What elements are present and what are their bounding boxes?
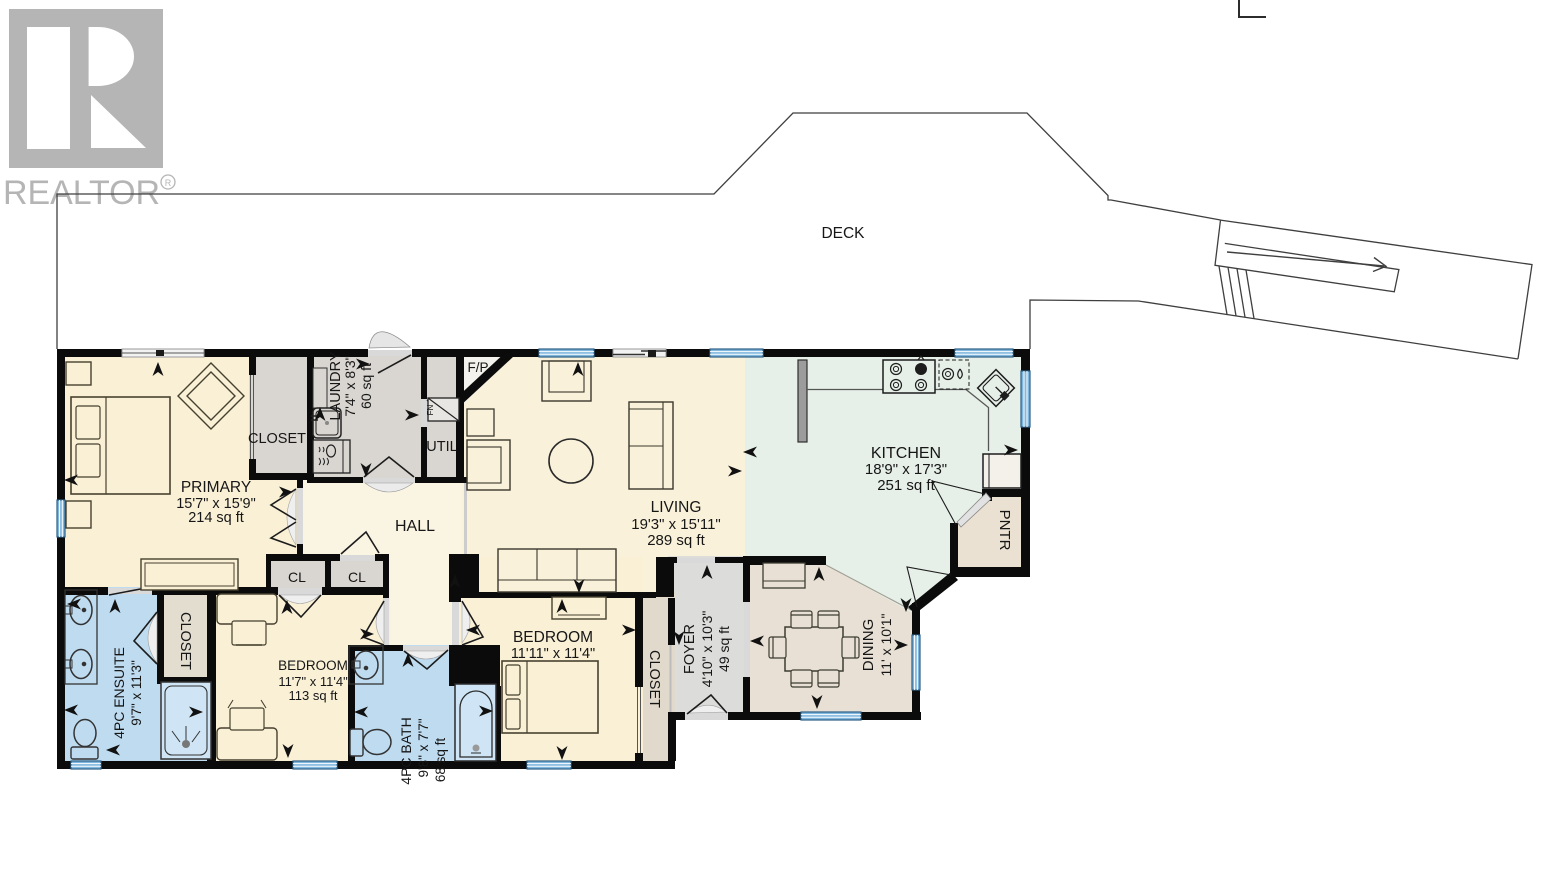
svg-text:F/P: F/P (467, 360, 488, 375)
svg-text:HALL: HALL (395, 518, 435, 535)
svg-text:DINING: DINING (860, 619, 877, 672)
svg-text:9'8" x 7'7": 9'8" x 7'7" (416, 718, 431, 777)
svg-text:9'7" x 11'3": 9'7" x 11'3" (129, 660, 144, 726)
svg-text:PNTR: PNTR (996, 510, 1013, 551)
svg-text:19'3" x 15'11": 19'3" x 15'11" (631, 516, 721, 533)
svg-text:11'7" x 11'4": 11'7" x 11'4" (278, 674, 348, 689)
svg-text:68 sq ft: 68 sq ft (433, 738, 448, 783)
svg-text:289 sq ft: 289 sq ft (647, 532, 705, 549)
svg-text:11'11" x 11'4": 11'11" x 11'4" (511, 646, 595, 662)
svg-text:FN: FN (426, 404, 435, 415)
svg-text:BEDROOM: BEDROOM (513, 629, 593, 646)
svg-text:49 sq ft: 49 sq ft (716, 626, 732, 672)
svg-text:CL: CL (288, 569, 306, 585)
svg-text:BEDROOM: BEDROOM (278, 658, 348, 673)
svg-text:214 sq ft: 214 sq ft (188, 510, 244, 526)
svg-text:FOYER: FOYER (682, 624, 698, 674)
svg-text:CLOSET: CLOSET (177, 612, 193, 670)
svg-text:KITCHEN: KITCHEN (871, 445, 941, 462)
svg-text:4PC BATH: 4PC BATH (398, 717, 414, 784)
svg-text:4PC ENSUITE: 4PC ENSUITE (111, 647, 127, 739)
svg-text:CLOSET: CLOSET (646, 650, 662, 708)
svg-text:251 sq ft: 251 sq ft (877, 477, 935, 494)
svg-text:CL: CL (348, 569, 366, 585)
svg-text:PRIMARY: PRIMARY (181, 479, 251, 496)
svg-text:60 sq ft: 60 sq ft (358, 363, 374, 409)
svg-text:18'9" x 17'3": 18'9" x 17'3" (865, 461, 947, 478)
svg-text:7'4" x 8'3": 7'4" x 8'3" (342, 355, 358, 416)
svg-text:REALTOR: REALTOR (3, 174, 160, 212)
svg-text:LIVING: LIVING (651, 499, 702, 516)
svg-text:4'10" x 10'3": 4'10" x 10'3" (699, 611, 715, 688)
svg-text:CLOSET: CLOSET (248, 431, 306, 447)
svg-text:DECK: DECK (821, 225, 865, 242)
svg-text:R: R (165, 178, 172, 188)
svg-text:UTIL: UTIL (426, 439, 457, 455)
svg-text:113 sq ft: 113 sq ft (289, 688, 338, 703)
svg-text:11' x 10'1": 11' x 10'1" (878, 613, 894, 676)
